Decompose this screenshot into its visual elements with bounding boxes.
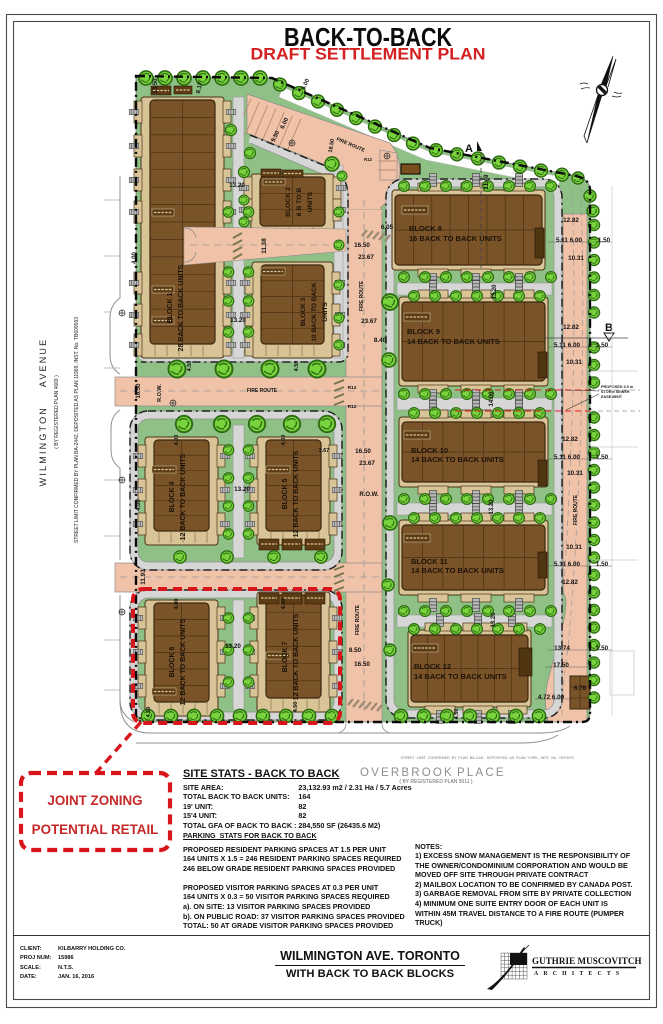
svg-text:FIRE ROUTE: FIRE ROUTE bbox=[355, 604, 361, 635]
svg-text:DRAFT SETTLEMENT PLAN: DRAFT SETTLEMENT PLAN bbox=[251, 46, 486, 64]
svg-text:BLOCK 12: BLOCK 12 bbox=[414, 662, 451, 671]
svg-text:10.31: 10.31 bbox=[567, 470, 583, 477]
svg-text:FIRE ROUTE: FIRE ROUTE bbox=[247, 388, 278, 394]
svg-text:1.50: 1.50 bbox=[596, 561, 609, 568]
svg-text:12.82: 12.82 bbox=[562, 579, 578, 586]
svg-text:5.11 6.00: 5.11 6.00 bbox=[554, 454, 580, 461]
svg-text:R12: R12 bbox=[348, 385, 357, 391]
svg-text:4.50: 4.50 bbox=[454, 709, 460, 720]
svg-text:BLOCK 6: BLOCK 6 bbox=[169, 647, 176, 678]
svg-text:JOINT ZONING: JOINT ZONING bbox=[47, 793, 142, 808]
svg-text:FIRE ROUTE: FIRE ROUTE bbox=[573, 494, 579, 525]
svg-text:14 BACK TO BACK UNITS: 14 BACK TO BACK UNITS bbox=[407, 337, 500, 346]
svg-text:5.11 6.00: 5.11 6.00 bbox=[556, 237, 582, 244]
svg-text:R12: R12 bbox=[364, 157, 372, 162]
svg-text:1.50: 1.50 bbox=[596, 342, 609, 349]
svg-text:4.50: 4.50 bbox=[293, 702, 299, 713]
svg-text:16.50: 16.50 bbox=[136, 383, 142, 399]
svg-text:STORM SEWER: STORM SEWER bbox=[601, 390, 630, 394]
svg-text:PROPOSED 6.0 m: PROPOSED 6.0 m bbox=[601, 385, 634, 389]
svg-text:8.40: 8.40 bbox=[374, 337, 387, 344]
svg-text:1.50: 1.50 bbox=[596, 645, 609, 652]
svg-text:11.93: 11.93 bbox=[140, 569, 147, 585]
svg-text:11.49: 11.49 bbox=[484, 174, 490, 189]
svg-text:5.11 6.00: 5.11 6.00 bbox=[554, 561, 580, 568]
svg-text:11.38: 11.38 bbox=[261, 238, 268, 254]
svg-text:BLOCK 3: BLOCK 3 bbox=[300, 297, 307, 326]
svg-text:PLACE: PLACE bbox=[457, 767, 506, 779]
svg-text:12 BACK TO BACK UNITS: 12 BACK TO BACK UNITS bbox=[180, 618, 187, 705]
svg-text:16.50: 16.50 bbox=[355, 448, 371, 455]
svg-text:13.20: 13.20 bbox=[225, 643, 241, 650]
svg-text:BLOCK 7: BLOCK 7 bbox=[282, 642, 289, 673]
svg-text:13.20: 13.20 bbox=[229, 182, 245, 189]
svg-text:BLOCK 2: BLOCK 2 bbox=[285, 187, 292, 217]
svg-text:13.20: 13.20 bbox=[492, 284, 498, 300]
svg-text:BLOCK 4: BLOCK 4 bbox=[169, 482, 176, 513]
svg-text:10.31: 10.31 bbox=[566, 359, 582, 366]
svg-text:R.O.W.: R.O.W. bbox=[359, 492, 379, 498]
svg-text:POTENTIAL RETAIL: POTENTIAL RETAIL bbox=[32, 822, 159, 837]
svg-text:STREET LIMIT CONFIRMED BY: STREET LIMIT CONFIRMED BY PLAN BA-2441, … bbox=[400, 756, 573, 760]
svg-text:4.50: 4.50 bbox=[146, 707, 152, 718]
svg-text:BLOCK 10: BLOCK 10 bbox=[411, 446, 448, 455]
svg-text:1.50: 1.50 bbox=[596, 454, 609, 461]
svg-text:6.78: 6.78 bbox=[574, 685, 587, 692]
svg-text:STREET LIMIT CONFIRMED BY PLAN: STREET LIMIT CONFIRMED BY PLAN BA-2442, … bbox=[74, 317, 80, 543]
svg-text:12 BACK TO BACK UNITS: 12 BACK TO BACK UNITS bbox=[180, 453, 187, 540]
svg-text:13.20: 13.20 bbox=[234, 486, 250, 493]
svg-text:R.O.W.: R.O.W. bbox=[157, 384, 163, 402]
svg-text:14.00: 14.00 bbox=[489, 391, 495, 407]
svg-text:10.31: 10.31 bbox=[568, 255, 584, 262]
svg-text:13.20: 13.20 bbox=[489, 499, 495, 515]
svg-text:10 BACK TO BACK: 10 BACK TO BACK bbox=[311, 282, 318, 341]
svg-text:4.50: 4.50 bbox=[187, 361, 193, 372]
svg-text:BLOCK 1: BLOCK 1 bbox=[167, 293, 174, 324]
svg-text:12 BACK TO BACK UNITS: 12 BACK TO BACK UNITS bbox=[293, 450, 300, 537]
svg-text:4.72 6.00: 4.72 6.00 bbox=[538, 694, 565, 701]
svg-text:4.50: 4.50 bbox=[294, 361, 300, 372]
svg-text:4.00: 4.00 bbox=[281, 599, 287, 610]
svg-text:A: A bbox=[465, 143, 473, 155]
svg-text:6 B TO B: 6 B TO B bbox=[296, 188, 303, 217]
svg-text:WILMINGTON AVENUE: WILMINGTON AVENUE bbox=[38, 338, 48, 487]
svg-text:BLOCK 5: BLOCK 5 bbox=[282, 479, 289, 510]
svg-text:13.74: 13.74 bbox=[554, 645, 570, 652]
svg-text:12.82: 12.82 bbox=[563, 217, 579, 224]
svg-text:13.20: 13.20 bbox=[491, 612, 497, 628]
svg-text:3.67: 3.67 bbox=[319, 448, 330, 454]
svg-text:GUTHRIE MUSCOVITCH: GUTHRIE MUSCOVITCH bbox=[532, 956, 642, 966]
svg-text:BLOCK 8: BLOCK 8 bbox=[409, 224, 442, 233]
svg-text:12.82: 12.82 bbox=[563, 324, 579, 331]
svg-text:23.67: 23.67 bbox=[358, 254, 374, 261]
svg-text:5.11 6.00: 5.11 6.00 bbox=[554, 342, 580, 349]
svg-text:28 BACK TO BACK UNITS: 28 BACK TO BACK UNITS bbox=[178, 264, 185, 351]
svg-text:4.00: 4.00 bbox=[174, 599, 180, 610]
svg-text:13.20: 13.20 bbox=[230, 317, 246, 324]
svg-text:BLOCK 11: BLOCK 11 bbox=[411, 557, 448, 566]
svg-text:12.82: 12.82 bbox=[562, 436, 578, 443]
svg-text:16 BACK TO BACK UNITS: 16 BACK TO BACK UNITS bbox=[409, 234, 502, 243]
svg-text:10.31: 10.31 bbox=[566, 544, 582, 551]
svg-text:16.50: 16.50 bbox=[354, 242, 370, 249]
svg-text:12 BACK TO BACK UNITS: 12 BACK TO BACK UNITS bbox=[293, 613, 300, 700]
svg-text:14 BACK TO BACK UNITS: 14 BACK TO BACK UNITS bbox=[411, 566, 504, 575]
svg-text:13.50: 13.50 bbox=[153, 78, 159, 94]
svg-text:14 BACK TO BACK UNITS: 14 BACK TO BACK UNITS bbox=[414, 672, 507, 681]
svg-text:ARCHITECTS: ARCHITECTS bbox=[534, 971, 624, 977]
svg-text:4.00: 4.00 bbox=[281, 435, 287, 446]
svg-text:14 BACK TO BACK UNITS: 14 BACK TO BACK UNITS bbox=[411, 455, 504, 464]
svg-text:OVERBROOK: OVERBROOK bbox=[360, 767, 454, 779]
svg-text:23.67: 23.67 bbox=[361, 318, 377, 325]
svg-text:UNITS: UNITS bbox=[307, 191, 314, 212]
svg-text:( BY REGISTERED PLAN 4669 ): ( BY REGISTERED PLAN 4669 ) bbox=[54, 375, 60, 449]
svg-text:FIRE ROUTE: FIRE ROUTE bbox=[359, 280, 365, 311]
svg-text:4.00: 4.00 bbox=[136, 499, 142, 511]
svg-text:16.50: 16.50 bbox=[354, 661, 370, 668]
svg-text:UNITS: UNITS bbox=[322, 302, 329, 322]
svg-text:6.05: 6.05 bbox=[381, 224, 394, 231]
svg-text:23.67: 23.67 bbox=[359, 460, 375, 467]
svg-text:BLOCK 9: BLOCK 9 bbox=[407, 327, 440, 336]
svg-text:R12: R12 bbox=[348, 404, 357, 410]
svg-text:4.00: 4.00 bbox=[174, 435, 180, 446]
svg-text:4.00: 4.00 bbox=[132, 252, 138, 264]
svg-text:8.50: 8.50 bbox=[349, 647, 362, 654]
svg-text:17.50: 17.50 bbox=[553, 662, 569, 669]
svg-text:1.50: 1.50 bbox=[598, 237, 611, 244]
